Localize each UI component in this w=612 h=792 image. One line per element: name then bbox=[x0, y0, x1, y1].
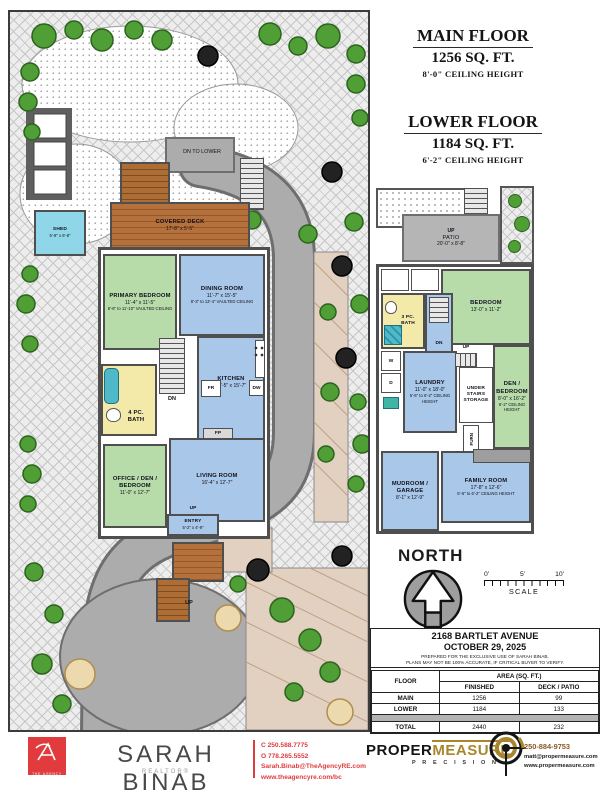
area-table: FLOOR AREA (SQ. FT.) FINISHED DECK / PAT… bbox=[371, 670, 599, 733]
shower bbox=[384, 325, 402, 345]
scale-tick-0: 0' bbox=[484, 571, 489, 578]
room-name: FAMILY ROOM bbox=[465, 478, 507, 485]
garden-beds bbox=[26, 108, 72, 200]
room-dining: DINING ROOM 11'-7" x 15'-5" 8'-3" to 13'… bbox=[179, 254, 265, 336]
col-finished: FINISHED bbox=[440, 682, 519, 693]
shrub bbox=[514, 216, 530, 232]
room-name: UNDER STAIRS STORAGE bbox=[460, 386, 492, 404]
spacer-cell bbox=[372, 715, 599, 722]
room-name: LAUNDRY bbox=[415, 380, 445, 387]
agency-a-icon bbox=[28, 737, 66, 767]
info-table: 2168 BARTLET AVENUE OCTOBER 29, 2025 PRE… bbox=[370, 628, 600, 734]
scale-label: SCALE bbox=[484, 587, 564, 596]
room-primary-bedroom: PRIMARY BEDROOM 11'-4" x 11'-5" 8'-6" to… bbox=[103, 254, 177, 350]
dishwasher-label: DW bbox=[253, 386, 261, 391]
room-name: DEN / BEDROOM bbox=[495, 381, 529, 395]
room-name: PRIMARY BEDROOM bbox=[109, 293, 170, 300]
plan-date: OCTOBER 29, 2025 bbox=[371, 642, 599, 654]
total-deck: 232 bbox=[519, 722, 598, 733]
scale-tick-labels: 0' 5' 10' bbox=[484, 571, 564, 580]
main-floor-area: 1256 SQ. FT. bbox=[380, 50, 566, 67]
deck-stairs bbox=[120, 162, 170, 204]
room-name: 4 PC. BATH bbox=[123, 410, 149, 424]
room-ceiling: 8'-6" to 11'-10" VAULTED CEILING bbox=[108, 306, 173, 311]
up-label: UP bbox=[455, 345, 477, 350]
site-plan: SHED 5'-8" x 6'-8" DN DN TO LOWER COVERE… bbox=[8, 10, 370, 732]
table-row-total: TOTAL 2440 232 bbox=[372, 722, 599, 733]
room-name: MUDROOM / GARAGE bbox=[383, 481, 437, 495]
col-deck-patio: DECK / PATIO bbox=[519, 682, 598, 693]
col-floor: FLOOR bbox=[372, 671, 440, 693]
agency-logo-text: THE AGENCY bbox=[28, 772, 66, 776]
row-finished: 1256 bbox=[440, 693, 519, 704]
washer-label: W bbox=[389, 359, 394, 364]
room-ceiling: 5'-6" to 6'-2" CEILING HEIGHT bbox=[457, 491, 514, 496]
room-name: COVERED DECK bbox=[155, 219, 204, 226]
agent-website: www.theagencyre.com/bc bbox=[261, 773, 366, 784]
agent-phone-office: O 778.265.5552 bbox=[261, 752, 366, 763]
agent-phone-cell: C 250.588.7775 bbox=[261, 741, 366, 752]
table-row-lower: LOWER 1184 133 bbox=[372, 704, 599, 715]
room-patio: UP PATIO 20'-0" x 8'-8" bbox=[402, 214, 500, 262]
scale-ruler bbox=[484, 580, 564, 586]
room-name: OFFICE / DEN / BEDROOM bbox=[105, 476, 165, 490]
lower-floor-area: 1184 SQ. FT. bbox=[380, 136, 566, 153]
room-name: DINING ROOM bbox=[201, 286, 243, 293]
north-compass-icon bbox=[402, 568, 464, 630]
room-ceiling: 6'-2" CEILING HEIGHT bbox=[495, 402, 529, 413]
closet bbox=[411, 269, 439, 291]
col-area: AREA (SQ. FT.) bbox=[440, 671, 599, 682]
bathtub bbox=[104, 368, 119, 404]
dishwasher-box: DW bbox=[249, 380, 264, 396]
pm-website: www.propermeasure.com bbox=[524, 762, 598, 771]
dryer-label: D bbox=[389, 381, 392, 386]
lower-floor-building: BEDROOM 13'-0" x 11'-2" 3 PC. BATH DN W … bbox=[376, 264, 534, 534]
room-dims: 17'-8" x 5'-5" bbox=[166, 226, 194, 232]
room-under-stairs: UNDER STAIRS STORAGE bbox=[459, 367, 493, 423]
fireplace-label: FP bbox=[215, 431, 221, 436]
dn-to-lower-label: DN TO LOWER bbox=[180, 150, 224, 156]
scale-bar: 0' 5' 10' SCALE bbox=[484, 571, 564, 596]
stairs-dn-label: DN bbox=[425, 341, 453, 346]
stove-burners bbox=[253, 344, 265, 360]
room-entry: ENTRY 5'-2" x 4'-9" bbox=[167, 514, 219, 536]
lower-floor-plan: UP PATIO 20'-0" x 8'-8" BEDROOM 13'-0" x… bbox=[376, 186, 536, 534]
room-den-bedroom: DEN / BEDROOM 8'-0" x 16'-2" 6'-2" CEILI… bbox=[493, 345, 531, 449]
room-name: PATIO bbox=[443, 235, 460, 242]
landing-step bbox=[473, 449, 531, 463]
agent-email: Sarah.Binab@TheAgencyRE.com bbox=[261, 762, 366, 773]
room-dims: 20'-0" x 8'-8" bbox=[437, 241, 465, 247]
shrub bbox=[508, 240, 521, 253]
lower-floor-title-block: LOWER FLOOR 1184 SQ. FT. 6'-2" CEILING H… bbox=[380, 112, 566, 165]
row-floor: LOWER bbox=[372, 704, 440, 715]
room-ceiling: 8'-3" to 13'-4" VAULTED CEILING bbox=[191, 299, 254, 304]
agent-title: REALTOR® bbox=[76, 769, 256, 775]
room-name: BEDROOM bbox=[470, 300, 502, 307]
row-floor: MAIN bbox=[372, 693, 440, 704]
scale-tick-10: 10' bbox=[555, 571, 564, 578]
closet bbox=[381, 269, 409, 291]
pm-word-proper: PROPER bbox=[366, 742, 432, 759]
main-floor-ceiling: 8'-0" CEILING HEIGHT bbox=[380, 69, 566, 79]
stairs-up-small bbox=[455, 353, 477, 367]
agency-logo: THE AGENCY bbox=[28, 737, 66, 775]
pm-phone: 250-884-9753 bbox=[524, 741, 598, 753]
shrub bbox=[508, 194, 522, 208]
room-laundry: LAUNDRY 11'-0" x 18'-0" 5'-6" to 6'-2" C… bbox=[403, 351, 457, 433]
fridge-box: FR bbox=[201, 380, 221, 397]
room-ceiling: 5'-6" to 6'-2" CEILING HEIGHT bbox=[405, 393, 455, 404]
room-dims: 5'-8" x 6'-8" bbox=[49, 233, 70, 238]
north-label: NORTH bbox=[398, 546, 463, 566]
room-mudroom: MUDROOM / GARAGE 8'-1" x 12'-9" bbox=[381, 451, 439, 531]
washer-box: W bbox=[381, 351, 401, 371]
room-dims: 11'-0" x 12'-7" bbox=[120, 490, 150, 496]
scale-tick-5: 5' bbox=[520, 571, 525, 578]
patio-garden-bed bbox=[500, 186, 534, 264]
room-dims: 16'-4" x 12'-7" bbox=[202, 480, 233, 486]
agent-name: SARAH BINAB bbox=[76, 741, 256, 792]
main-floor-title: MAIN FLOOR bbox=[413, 26, 533, 48]
row-finished: 1184 bbox=[440, 704, 519, 715]
floor-plan-sheet: SHED 5'-8" x 6'-8" DN DN TO LOWER COVERE… bbox=[0, 0, 612, 792]
main-floor-building: PRIMARY BEDROOM 11'-4" x 11'-5" 8'-6" to… bbox=[98, 247, 270, 539]
interior-stairs-down bbox=[159, 338, 185, 394]
furnace-label: FURN bbox=[469, 433, 474, 446]
note-line-2: PLANS MAY NOT BE 100% ACCURATE, IF CRITI… bbox=[371, 660, 599, 668]
table-spacer-row bbox=[372, 715, 599, 722]
toilet bbox=[106, 408, 121, 422]
main-floor-title-block: MAIN FLOOR 1256 SQ. FT. 8'-0" CEILING HE… bbox=[380, 26, 566, 79]
room-bedroom-lower: BEDROOM 13'-0" x 11'-2" bbox=[441, 269, 531, 345]
property-address: 2168 BARTLET AVENUE bbox=[371, 629, 599, 642]
lower-floor-ceiling: 6'-2" CEILING HEIGHT bbox=[380, 155, 566, 165]
front-stairs-up-label: UP bbox=[178, 600, 200, 606]
footer-divider bbox=[253, 740, 255, 778]
room-dims: 13'-0" x 11'-2" bbox=[471, 307, 501, 313]
room-office: OFFICE / DEN / BEDROOM 11'-0" x 12'-7" bbox=[103, 444, 167, 528]
total-floor: TOTAL bbox=[372, 722, 440, 733]
stairs-dn bbox=[429, 297, 449, 323]
laundry-sink bbox=[383, 397, 399, 409]
table-row-main: MAIN 1256 99 bbox=[372, 693, 599, 704]
toilet bbox=[385, 301, 397, 314]
stairs-dn-label: DN bbox=[159, 396, 185, 402]
dryer-box: D bbox=[381, 373, 401, 393]
agent-contact-block: C 250.588.7775 O 778.265.5552 Sarah.Bina… bbox=[261, 741, 366, 783]
row-deck: 99 bbox=[519, 693, 598, 704]
fireplace-box: FP bbox=[203, 428, 233, 439]
room-dims: 5'-2" x 4'-9" bbox=[182, 525, 203, 530]
lower-floor-title: LOWER FLOOR bbox=[404, 112, 542, 134]
fridge-label: FR bbox=[208, 386, 214, 391]
room-name: LIVING ROOM bbox=[196, 473, 237, 480]
room-dims: 8'-1" x 12'-9" bbox=[396, 495, 424, 501]
entry-up-label: UP bbox=[171, 506, 215, 511]
room-name: KITCHEN bbox=[217, 376, 244, 383]
pm-contact-block: 250-884-9753 matt@propermeasure.com www.… bbox=[524, 741, 598, 771]
entry-porch bbox=[172, 542, 224, 582]
row-deck: 133 bbox=[519, 704, 598, 715]
room-covered-deck: COVERED DECK 17'-8" x 5'-5" bbox=[110, 202, 250, 250]
pm-email: matt@propermeasure.com bbox=[524, 753, 598, 762]
table-header-row: FLOOR AREA (SQ. FT.) bbox=[372, 671, 599, 682]
room-shed: SHED 5'-8" x 6'-8" bbox=[34, 210, 86, 256]
